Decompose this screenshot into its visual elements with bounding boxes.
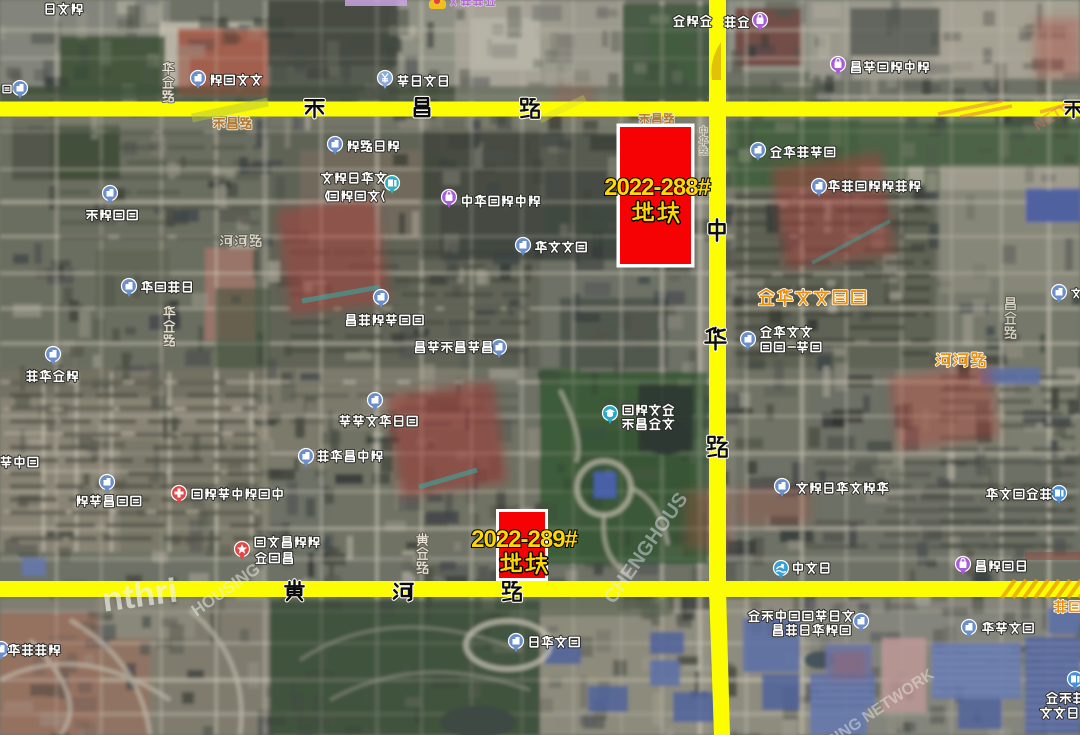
svg-text:2022-289#: 2022-289# — [471, 526, 577, 553]
svg-text:2022-288#: 2022-288# — [604, 174, 710, 201]
